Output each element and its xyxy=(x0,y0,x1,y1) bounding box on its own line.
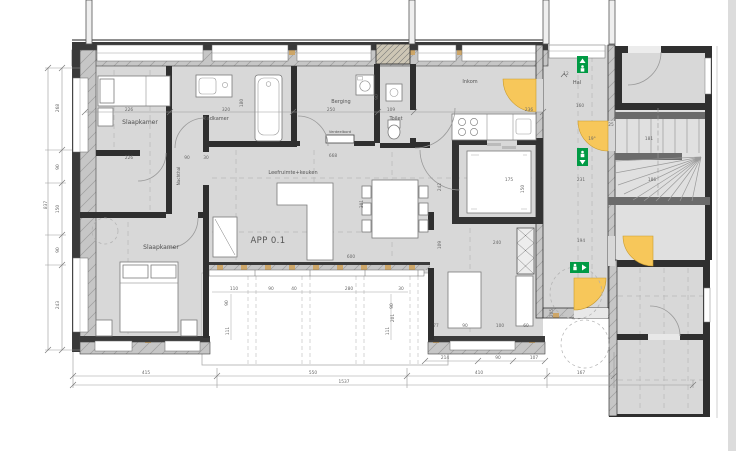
dimension-label: 175 xyxy=(505,177,513,183)
dimension-label: 194 xyxy=(577,238,585,244)
dimension-label: 180 xyxy=(239,99,245,107)
dimension-label: 231 xyxy=(577,177,585,183)
dimension-label: 236 xyxy=(525,107,533,113)
dimension-label: 150 xyxy=(520,185,526,193)
dimension-label: 90 xyxy=(184,155,190,161)
dimension-label: 181 xyxy=(645,136,653,142)
bed-double xyxy=(120,262,178,332)
window-bottom-room xyxy=(704,288,710,322)
dimension-label: 250 xyxy=(327,107,335,113)
dimension-label: 600 xyxy=(347,254,355,260)
dimension-label: 110 xyxy=(230,286,238,292)
nightstand xyxy=(98,108,113,126)
label-slaapkamer2: Slaapkamer xyxy=(143,244,179,251)
top-right-room-floor xyxy=(615,46,712,110)
washing-machine xyxy=(356,75,374,95)
dimension-label: 226 xyxy=(125,155,133,161)
dimension-label: 109 xyxy=(387,107,395,113)
label-verdeelbord: Verdeelbord xyxy=(329,130,351,134)
dimension-label: 240 xyxy=(493,240,501,246)
dimension-label: 160 xyxy=(576,103,584,109)
dimension-label: 280 xyxy=(345,286,353,292)
dimension-label: 201 xyxy=(390,314,396,322)
exit-sign-down xyxy=(577,148,588,166)
label-inkom: Inkom xyxy=(462,79,477,85)
terrace xyxy=(202,273,448,365)
dimension-label: 90 xyxy=(495,355,501,361)
dimension-label: 90 xyxy=(374,94,380,100)
dimension-label: 243 xyxy=(55,301,61,309)
dimension-label: 1537 xyxy=(339,379,350,385)
dimension-label: 668 xyxy=(329,153,337,159)
dimension-label: 90 xyxy=(462,323,468,329)
label-apartment-id: APP 0.1 xyxy=(250,236,285,246)
dimension-label: 320 xyxy=(222,107,230,113)
dimension-label: 410 xyxy=(475,370,483,376)
top-windows xyxy=(97,45,605,61)
shaft-block xyxy=(376,44,410,64)
dimension-label: 150 xyxy=(55,205,61,213)
dimension-label: 109 xyxy=(437,241,443,249)
label-leefruimte: Leefruimte+keuken xyxy=(268,170,317,176)
bathtub xyxy=(255,75,282,141)
dimension-label: 90 xyxy=(224,300,230,306)
dimension-label: 226 xyxy=(125,107,133,113)
living-window xyxy=(209,270,424,276)
dimension-label: 107 xyxy=(530,355,538,361)
dimension-label: 111 xyxy=(225,327,231,335)
builtin-cabinet xyxy=(448,272,481,328)
ventilation-shaft xyxy=(517,228,534,274)
nightstand xyxy=(96,320,112,336)
dimension-label: 837 xyxy=(43,201,49,209)
washbasin-badkamer xyxy=(196,75,232,97)
dimension-label: 242 xyxy=(437,183,443,191)
dimension-label: 90 xyxy=(389,303,395,309)
dining-table xyxy=(362,180,428,238)
dimension-label: 30 xyxy=(203,155,209,161)
dimension-label: 90 xyxy=(55,247,61,253)
label-toilet: Toilet xyxy=(388,116,402,122)
floor-plan-page: 2263202501092362269030668600240110904028… xyxy=(0,0,736,451)
label-hal: Hal xyxy=(573,80,581,86)
dimension-label: 415 xyxy=(142,370,150,376)
label-badkamer: Badkamer xyxy=(203,116,229,122)
dimension-label: 301 xyxy=(359,200,365,208)
elevator-car xyxy=(467,143,531,213)
dimension-label: 90 xyxy=(55,164,61,170)
dimension-label: 77 xyxy=(433,323,439,329)
tv-cabinet xyxy=(213,217,237,257)
kitchen-counter xyxy=(452,114,536,140)
dimension-label: 111 xyxy=(385,327,391,335)
exit-sign-up xyxy=(577,56,588,73)
exit-sign-right xyxy=(570,262,589,273)
dimension-label: 550 xyxy=(309,370,317,376)
label-berging: Berging xyxy=(331,99,350,105)
dimension-label: 19° xyxy=(588,136,596,142)
dimension-label: 186 xyxy=(648,177,656,183)
builtin-cabinet-narrow xyxy=(516,276,533,326)
dimension-label: 25 xyxy=(608,122,614,128)
screen-edge-strip xyxy=(728,0,736,451)
right-block-window xyxy=(450,341,515,350)
dimension-label: 60 xyxy=(523,323,529,329)
label-slaapkamer1: Slaapkamer xyxy=(122,119,158,126)
label-nachthal: Nachthal xyxy=(176,167,181,186)
dimension-label: 214 xyxy=(441,355,449,361)
dimension-label: 167 xyxy=(577,370,585,376)
dimension-label: 12 xyxy=(563,71,569,77)
dimension-label: 30 xyxy=(398,286,404,292)
nightstand xyxy=(181,320,197,336)
dimension-label: 100 xyxy=(496,323,504,329)
dimension-label: 268 xyxy=(55,104,61,112)
dimension-label: 205 xyxy=(549,309,555,317)
floor-plan-drawing: 2263202501092362269030668600240110904028… xyxy=(0,0,736,451)
dimension-label: 90 xyxy=(268,286,274,292)
wall-stubs xyxy=(86,0,615,44)
window-right-room xyxy=(705,58,711,94)
distribution-board xyxy=(326,135,354,143)
dimension-label: 40 xyxy=(291,286,297,292)
bed-single xyxy=(98,76,170,106)
